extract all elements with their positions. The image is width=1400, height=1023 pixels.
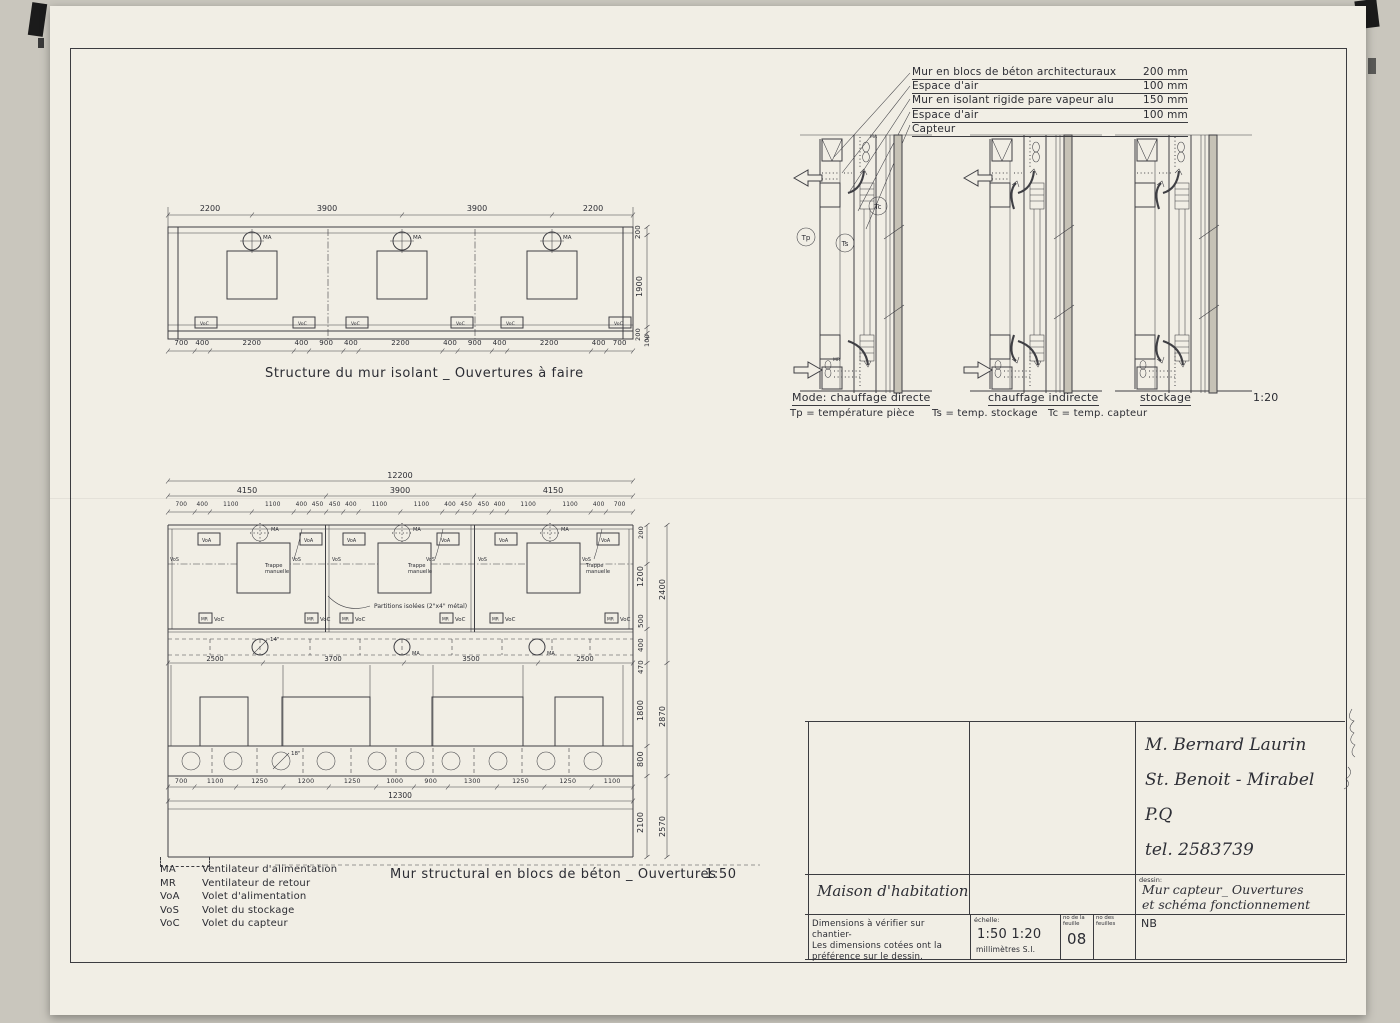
svg-text:18": 18" <box>291 751 301 757</box>
note-line: Dimensions à vérifier sur chantier- <box>812 919 967 941</box>
svg-text:VoC: VoC <box>455 617 466 623</box>
svg-text:3500: 3500 <box>462 655 479 663</box>
edge-mark <box>28 2 47 37</box>
client-line: tel. 2583739 <box>1145 833 1340 868</box>
structural-right-dim: 2870 <box>658 706 667 727</box>
dim-line-top: 2200 3900 3900 2200 <box>166 204 635 227</box>
foundation-zone <box>168 809 760 865</box>
layer-annotation-row: Mur en blocs de béton architecturaux200 … <box>912 66 1188 80</box>
drawing-title-line: Mur capteur_ Ouvertures <box>1142 882 1310 897</box>
svg-text:VoA: VoA <box>202 538 212 544</box>
structural-right-dim: 200 <box>637 526 645 539</box>
isolant-bottom-dims: 7004002200400900400220040090040022004007… <box>168 339 633 347</box>
client-line: St. Benoit - Mirabel P.Q <box>1145 763 1340 833</box>
drawing-title: Mur capteur_ Ouvertureset schéma fonctio… <box>1142 882 1310 912</box>
layer-annotation-row: Mur en isolant rigide pare vapeur alu150… <box>912 94 1188 108</box>
sheet-number-label: no de la feuille <box>1063 916 1091 928</box>
section-chauffage-directe: Tp Ts Tc MA MR <box>794 134 904 393</box>
svg-text:VoC: VoC <box>506 321 515 327</box>
svg-text:14": 14" <box>270 637 280 643</box>
svg-text:3900: 3900 <box>390 486 410 495</box>
svg-text:VoA: VoA <box>304 538 314 544</box>
dim-line-bottom <box>166 349 635 354</box>
margin-signature-scribble <box>1338 701 1362 811</box>
title-block-line <box>969 721 970 914</box>
structural-right-dim: 2400 <box>658 579 667 600</box>
isolant-caption: Structure du mur isolant _ Ouvertures à … <box>265 366 584 381</box>
mode-caption-directe: Mode: chauffage directe <box>792 391 930 406</box>
layer-annotation-row: Espace d'air100 mm <box>912 109 1188 123</box>
temp-legend-ts: Ts = temp. stockage <box>932 408 1038 419</box>
svg-text:VoC: VoC <box>355 617 366 623</box>
legend-row: MRVentilateur de retour <box>160 877 400 891</box>
svg-text:MR: MR <box>307 617 314 623</box>
svg-text:VoC: VoC <box>214 617 225 623</box>
svg-text:VoA: VoA <box>441 538 451 544</box>
svg-text:2200: 2200 <box>200 204 220 213</box>
temp-legend-tp: Tp = température pièce <box>790 408 915 419</box>
svg-text:MA: MA <box>870 134 878 140</box>
edge-mark <box>38 38 44 48</box>
initials: NB <box>1141 917 1157 930</box>
title-block-line <box>970 914 971 959</box>
svg-text:MA: MA <box>413 527 421 533</box>
note-line: préférence sur le dessin. <box>812 952 967 963</box>
layer-annotation-row: Espace d'air100 mm <box>912 80 1188 94</box>
plenum-channel: 14" MA MA 2500 3700 3500 2500 <box>166 637 635 666</box>
svg-text:VoC: VoC <box>320 617 331 623</box>
isolant-right-dim: 200 <box>634 328 642 341</box>
mode-caption-indirecte: chauffage indirecte <box>988 391 1099 406</box>
svg-text:VoA: VoA <box>347 538 357 544</box>
svg-text:VoC: VoC <box>298 321 307 327</box>
sheets-count-label: no des feuilles <box>1096 916 1132 928</box>
structural-scale: 1:50 <box>705 867 737 882</box>
svg-text:Partitions isolées (2"x4" méta: Partitions isolées (2"x4" métal) <box>374 603 467 610</box>
legend-row: VoAVolet d'alimentation <box>160 890 400 904</box>
sections-scale: 1:20 <box>1253 391 1279 404</box>
lower-wall-zone <box>171 665 623 746</box>
supply-fan-symbols: MA MA MA <box>240 229 572 253</box>
svg-text:manuelle: manuelle <box>408 569 432 575</box>
svg-text:4150: 4150 <box>237 486 257 495</box>
svg-text:MA: MA <box>412 651 420 657</box>
svg-text:VoC: VoC <box>505 617 516 623</box>
mode-caption-stockage: stockage <box>1140 391 1191 406</box>
svg-text:3900: 3900 <box>467 204 487 213</box>
section-stockage <box>1135 135 1219 393</box>
svg-text:MR: MR <box>201 617 208 623</box>
svg-text:VoA: VoA <box>601 538 611 544</box>
sheet-number: 08 <box>1067 930 1087 948</box>
note-line: Les dimensions cotées ont la <box>812 941 967 952</box>
structural-right-dim: 400 <box>637 638 645 652</box>
svg-text:3900: 3900 <box>317 204 337 213</box>
window-openings <box>227 251 577 299</box>
scanned-drawing-photo: { "labels": { "ma": "MA", "mr": "MR", "v… <box>0 0 1400 1023</box>
structural-right-dim: 1200 <box>636 566 645 587</box>
svg-text:MR: MR <box>833 357 840 363</box>
scale-units: millimètres S.I. <box>976 945 1035 954</box>
svg-text:Tp: Tp <box>801 234 811 242</box>
title-block-line <box>808 721 809 959</box>
svg-text:3700: 3700 <box>324 655 341 663</box>
svg-text:VoS: VoS <box>332 557 341 563</box>
title-block-line <box>805 721 1345 722</box>
title-block: M. Bernard LaurinSt. Benoit - Mirabel P.… <box>805 716 1345 961</box>
svg-text:2500: 2500 <box>206 655 223 663</box>
structural-right-dim: 2100 <box>636 812 645 833</box>
structural-wall-elevation: 12200 4150 3900 4150 MA MA MA VoA <box>150 469 760 889</box>
structural-detail-dims: 7004001100110040045045040011001100400450… <box>168 502 633 508</box>
svg-text:manuelle: manuelle <box>265 569 289 575</box>
vent-hole-strip: 18" 12300 <box>166 746 635 804</box>
svg-text:12300: 12300 <box>388 791 412 800</box>
structural-right-dim: 2570 <box>658 816 667 837</box>
svg-text:MR: MR <box>442 617 449 623</box>
client-line: M. Bernard Laurin <box>1145 728 1340 763</box>
svg-text:Ts: Ts <box>841 240 849 248</box>
edge-mark <box>1368 58 1376 74</box>
svg-text:MR: MR <box>342 617 349 623</box>
svg-text:4150: 4150 <box>543 486 563 495</box>
project-title: Maison d'habitation <box>817 882 968 900</box>
general-notes: Dimensions à vérifier sur chantier-Les d… <box>812 919 967 963</box>
dim-line-right <box>645 225 650 341</box>
scale-label: échelle: <box>974 916 1000 924</box>
structural-hole-dims: 7001100125012001250100090013001250125011… <box>168 778 633 785</box>
svg-text:VoC: VoC <box>200 321 209 327</box>
svg-text:MA: MA <box>563 235 572 241</box>
structural-right-dim: 470 <box>637 660 645 674</box>
svg-text:VoS: VoS <box>292 557 301 563</box>
structural-caption: Mur structural en blocs de béton _ Ouver… <box>390 867 717 882</box>
svg-text:Tc: Tc <box>874 203 882 211</box>
svg-text:VoS: VoS <box>170 557 179 563</box>
svg-text:manuelle: manuelle <box>586 569 610 575</box>
legend: MAVentilateur d'alimentation MRVentilate… <box>160 863 400 931</box>
svg-text:VoC: VoC <box>614 321 623 327</box>
svg-text:MA: MA <box>561 527 569 533</box>
svg-text:2200: 2200 <box>583 204 603 213</box>
title-block-line <box>1135 721 1136 914</box>
isolant-right-dim: 100 <box>643 334 651 347</box>
svg-text:VoC: VoC <box>351 321 360 327</box>
svg-text:MR: MR <box>492 617 499 623</box>
title-block-line <box>805 874 1345 875</box>
isolant-right-dim: 200 <box>634 225 642 239</box>
structural-right-dim: 800 <box>636 751 645 767</box>
svg-text:VoC: VoC <box>456 321 465 327</box>
temp-legend-tc: Tc = temp. capteur <box>1048 408 1147 419</box>
isolant-wall-elevation: 2200 3900 3900 2200 MA MA MA <box>150 199 750 384</box>
scale-values: 1:50 1:20 <box>977 927 1041 942</box>
ceiling-floor-lines <box>800 135 1252 391</box>
structural-right-dim: 1800 <box>636 700 645 721</box>
title-block-line <box>1060 914 1061 959</box>
capteur-damper-boxes: VoC VoC VoC VoC VoC VoC <box>195 317 631 328</box>
isolant-right-dim: 1900 <box>635 276 644 297</box>
structural-right-dim: 500 <box>637 614 645 628</box>
svg-text:VoC: VoC <box>620 617 631 623</box>
upper-wall-zone: MA MA MA VoA VoA VoA VoA VoA VoA VoSVoS … <box>168 523 633 857</box>
drawing-title-line: et schéma fonctionnement <box>1142 897 1310 912</box>
section-chauffage-indirecte <box>964 135 1074 393</box>
svg-text:MA: MA <box>271 527 279 533</box>
drawing-sheet: 2200 3900 3900 2200 MA MA MA <box>50 6 1366 1015</box>
legend-row: VoCVolet du capteur <box>160 917 400 931</box>
svg-text:MR: MR <box>607 617 614 623</box>
svg-text:MA: MA <box>413 235 422 241</box>
title-block-line <box>1093 914 1094 959</box>
svg-text:VoS: VoS <box>478 557 487 563</box>
dim-lines-right <box>645 523 670 859</box>
layer-annotation-row: Capteur <box>912 123 1188 137</box>
svg-text:VoA: VoA <box>499 538 509 544</box>
svg-text:12200: 12200 <box>387 471 412 480</box>
svg-text:2500: 2500 <box>576 655 593 663</box>
legend-row: VoSVolet du stockage <box>160 904 400 918</box>
svg-text:MA: MA <box>547 651 555 657</box>
client-info: M. Bernard LaurinSt. Benoit - Mirabel P.… <box>1145 728 1340 868</box>
section-layer-annotations: Mur en blocs de béton architecturaux200 … <box>912 66 1188 137</box>
svg-text:MA: MA <box>263 235 272 241</box>
title-block-line <box>1135 914 1136 959</box>
legend-dashed-box <box>160 857 210 867</box>
svg-text:VoS: VoS <box>426 557 435 563</box>
